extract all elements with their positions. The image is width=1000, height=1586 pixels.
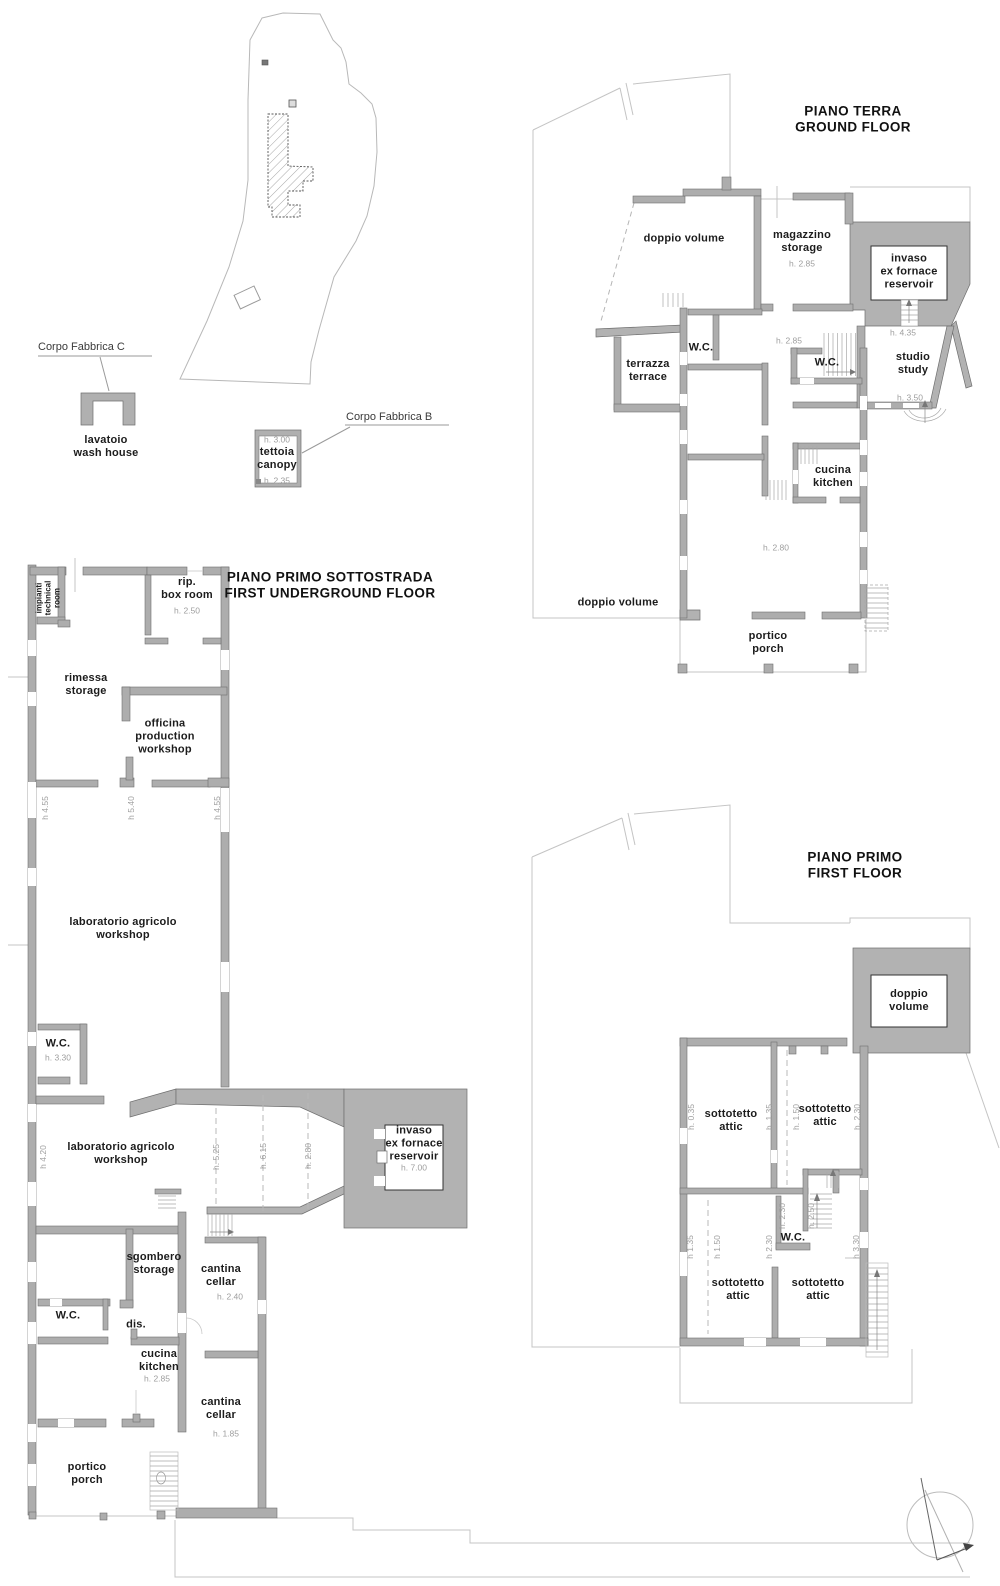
ff-sottotetto-3: sottotetto attic	[712, 1277, 765, 1303]
ug-wc-1: W.C.	[46, 1038, 71, 1051]
site-corpo-fabbrica-c-label: Corpo Fabbrica C	[38, 341, 125, 353]
ff-height-150-b: h 1.50	[712, 1235, 722, 1259]
ff-height-135-a: h. 1.35	[764, 1104, 774, 1130]
gf-height-350: h. 3.50	[897, 394, 923, 403]
ug-rip-box-room: rip. box room	[161, 576, 213, 602]
floor-plan-sheet: Corpo Fabbrica CCorpo Fabbrica Blavatoio…	[0, 0, 1000, 1586]
ff-wc: W.C.	[781, 1232, 806, 1245]
ff-height-230-b: h. 2.30	[777, 1203, 787, 1229]
gf-cucina: cucina kitchen	[813, 464, 853, 490]
gf-invaso: invaso ex fornace reservoir	[880, 253, 937, 292]
ug-cucina-height: h. 2.85	[144, 1375, 170, 1384]
gf-height-280: h. 2.80	[763, 544, 789, 553]
ug-cucina: cucina kitchen	[139, 1348, 179, 1374]
gf-height-435: h. 4.35	[890, 329, 916, 338]
ug-invaso: invaso ex fornace reservoir	[385, 1125, 442, 1164]
ug-dis: dis.	[126, 1319, 146, 1332]
ug-cantina-2-height: h. 1.85	[213, 1430, 239, 1439]
ug-height-420: h 4.20	[38, 1145, 48, 1169]
ug-laboratorio-1: laboratorio agricolo workshop	[69, 916, 176, 942]
ff-sottotetto-1: sottotetto attic	[705, 1108, 758, 1134]
ug-officina: officina production workshop	[135, 718, 194, 757]
ug-height-455-right: h 4.55	[212, 796, 222, 820]
site-lavatoio-label: lavatoio wash house	[74, 434, 139, 460]
ug-height-280: h. 2.80	[303, 1143, 313, 1169]
site-tettoia-label: tettoia canopy	[257, 446, 297, 472]
ug-height-525: h. 5.25	[211, 1144, 221, 1170]
gf-wc-2: W.C.	[815, 357, 840, 370]
ug-height-615: h. 6.15	[258, 1143, 268, 1169]
gf-portico: portico porch	[749, 630, 788, 656]
label-layer: Corpo Fabbrica CCorpo Fabbrica Blavatoio…	[0, 0, 1000, 1586]
gf-height-285-hall: h. 2.85	[776, 337, 802, 346]
ug-wc-1-height: h. 3.30	[45, 1054, 71, 1063]
ff-height-135-b: h 1.35	[685, 1235, 695, 1259]
ug-invaso-height: h. 7.00	[401, 1164, 427, 1173]
ug-height-455-left: h 4.55	[40, 796, 50, 820]
gf-terrazza: terrazza terrace	[626, 358, 669, 384]
gf-magazzino-height: h. 2.85	[789, 260, 815, 269]
site-tettoia-height-top: h. 3.00	[264, 436, 290, 445]
ug-impianti: impianti technical room	[35, 581, 62, 616]
ug-portico: portico porch	[68, 1461, 107, 1487]
gf-title: PIANO TERRA GROUND FLOOR	[795, 104, 911, 135]
ug-wc-2: W.C.	[56, 1310, 81, 1323]
gf-doppio-volume-top: doppio volume	[644, 233, 725, 246]
ug-rip-height: h. 2.50	[174, 607, 200, 616]
ug-cantina-1-height: h. 2.40	[217, 1293, 243, 1302]
ff-doppio-volume: doppio volume	[889, 988, 929, 1014]
gf-studio: studio study	[896, 351, 930, 377]
gf-magazzino: magazzino storage	[773, 229, 831, 255]
ff-height-230-c: h 2.30	[764, 1235, 774, 1259]
site-tettoia-height-bottom: h. 2.35	[264, 477, 290, 486]
ug-sgombero: sgombero storage	[127, 1251, 182, 1277]
ug-cantina-1: cantina cellar	[201, 1263, 241, 1289]
site-corpo-fabbrica-b-label: Corpo Fabbrica B	[346, 411, 432, 423]
gf-doppio-volume-bottom: doppio volume	[578, 597, 659, 610]
ug-laboratorio-2: laboratorio agricolo workshop	[67, 1141, 174, 1167]
gf-wc-1: W.C.	[689, 342, 714, 355]
ff-height-330: h 3.30	[851, 1235, 861, 1259]
ug-rimessa: rimessa storage	[65, 672, 108, 698]
ff-title: PIANO PRIMO FIRST FLOOR	[807, 850, 902, 881]
ff-height-250: h. 2.50	[806, 1203, 816, 1229]
ug-height-540: h 5.40	[126, 796, 136, 820]
ff-height-230-a: h. 2.30	[852, 1104, 862, 1130]
ug-cantina-2: cantina cellar	[201, 1396, 241, 1422]
ff-height-150-a: h. 1.50	[791, 1104, 801, 1130]
ff-height-035: h. 0.35	[686, 1104, 696, 1130]
ff-sottotetto-4: sottotetto attic	[792, 1277, 845, 1303]
ff-sottotetto-2: sottotetto attic	[799, 1103, 852, 1129]
ug-title: PIANO PRIMO SOTTOSTRADA FIRST UNDERGROUN…	[225, 570, 436, 601]
